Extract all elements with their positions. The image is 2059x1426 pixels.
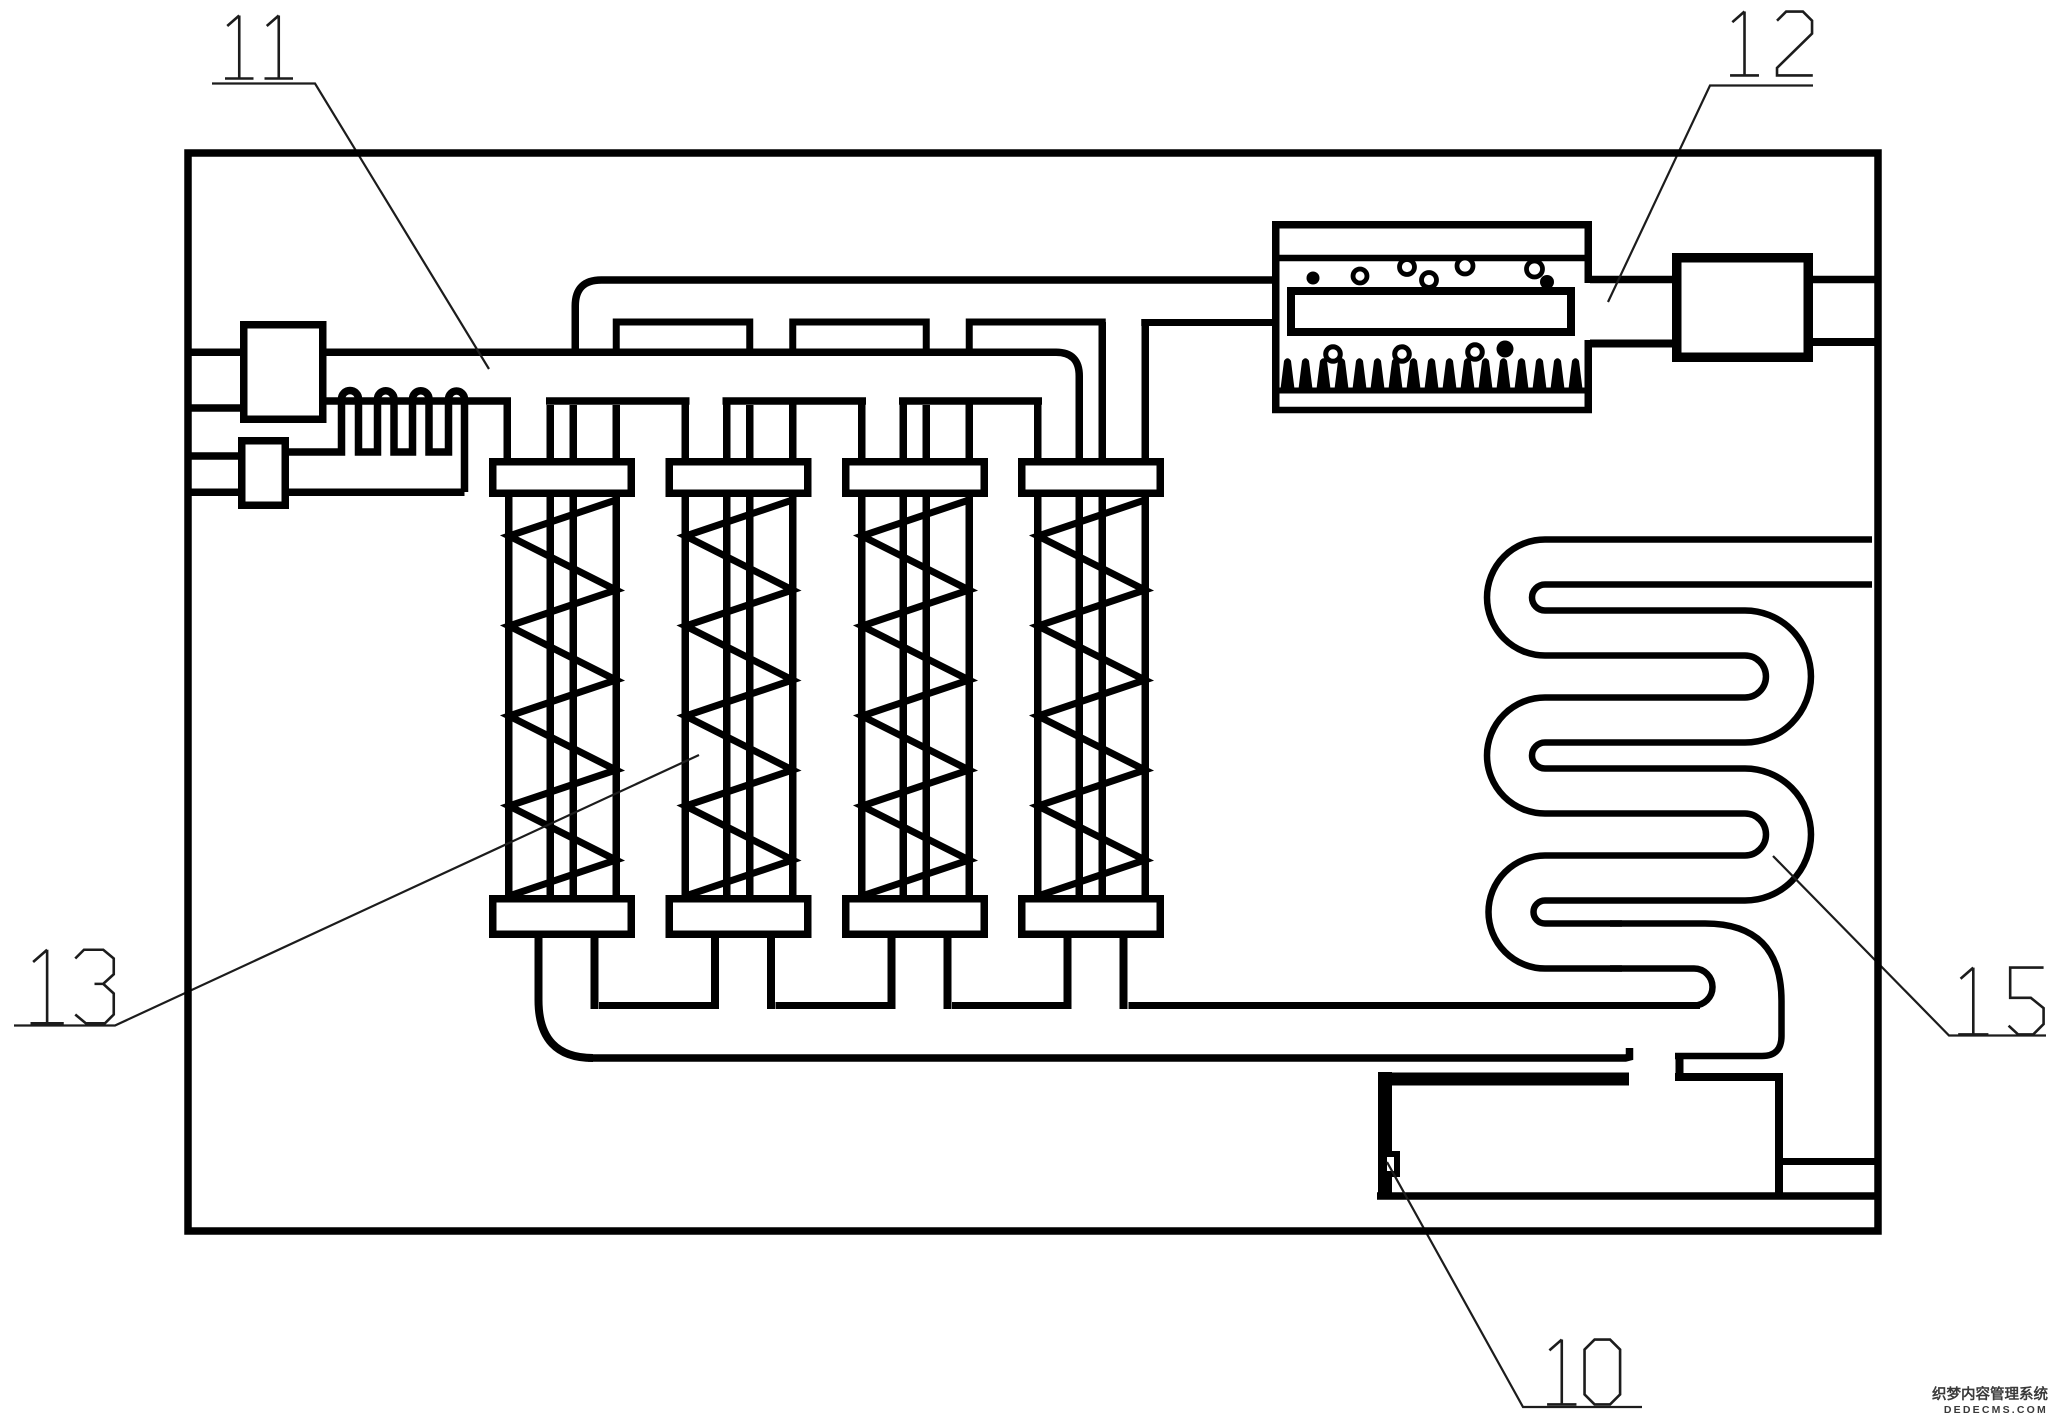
svg-text:织梦内容管理系统: 织梦内容管理系统 [1932,1385,2048,1403]
svg-text:DEDECMS.COM: DEDECMS.COM [1944,1404,2048,1416]
